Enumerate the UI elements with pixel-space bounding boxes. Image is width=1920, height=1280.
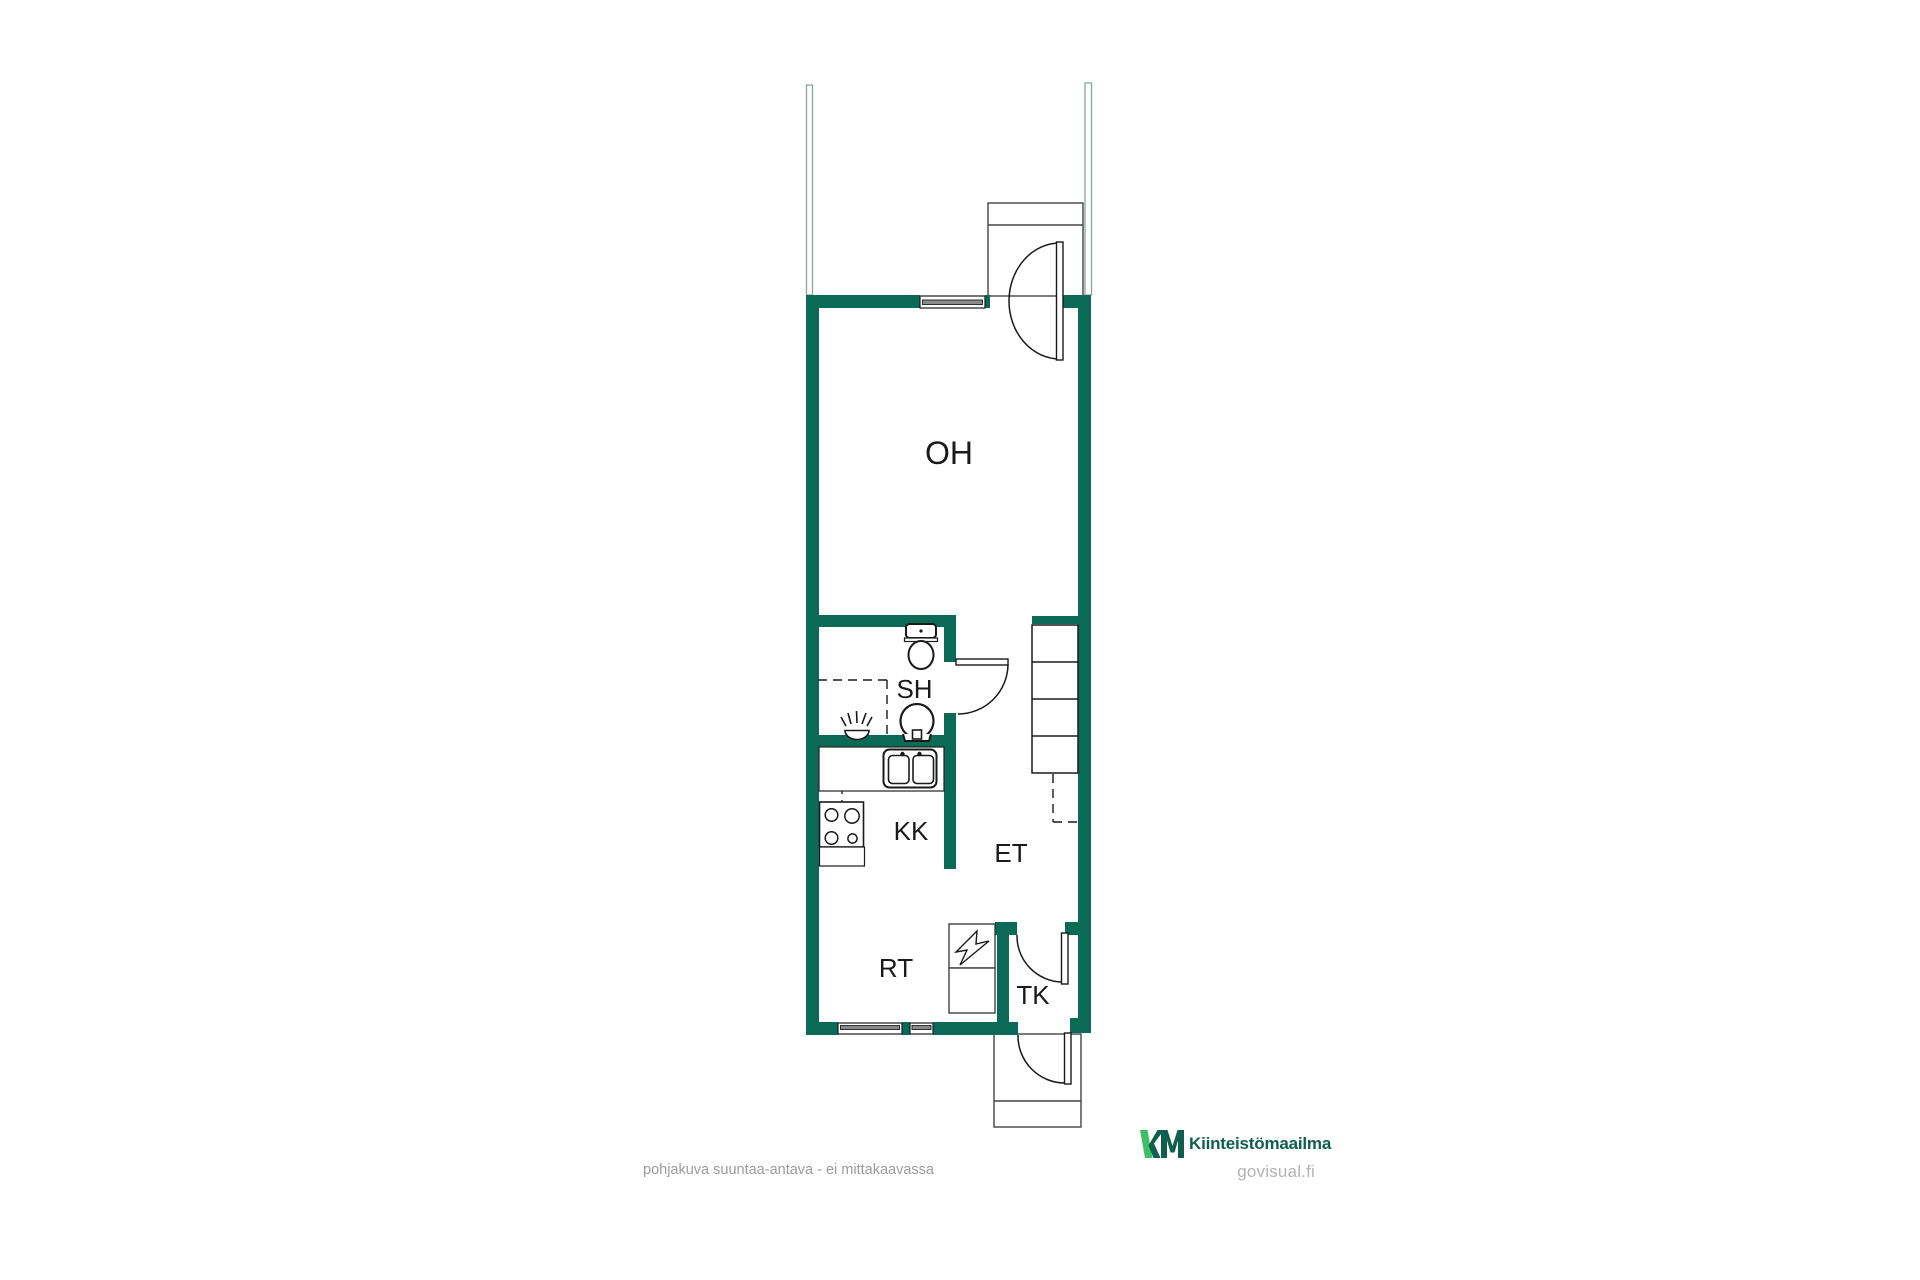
wall-sh-divider-upper (944, 615, 956, 662)
shower-spray-line (857, 711, 858, 723)
kitchen-sink (884, 750, 937, 788)
kiinteistomaailma-logo: Kiinteistömaailma (1137, 1126, 1331, 1162)
room-label-et: ET (994, 838, 1027, 868)
electrical-cabinet (949, 924, 995, 1013)
wall-bottom-right-segment (933, 1022, 1018, 1035)
window-top-glass (923, 300, 983, 305)
wall-closet-stub (1032, 616, 1091, 624)
window-top (920, 296, 985, 308)
sink-basin-left (889, 756, 910, 784)
washbasin (901, 704, 934, 741)
toilet-button (919, 629, 922, 632)
toilet-bowl (909, 641, 934, 669)
wall-bottom-mid-segment (902, 1022, 910, 1035)
shower-spray-line (867, 717, 872, 726)
watermark-text: govisual.fi (1230, 1162, 1315, 1182)
window-bottom-large-glass (841, 1026, 900, 1030)
wall-top-mid-sliver (985, 295, 990, 308)
tk-exterior-door-leaf (1065, 1033, 1072, 1084)
stove-base (820, 847, 865, 866)
electrical-box-lower (949, 968, 995, 1013)
km-monogram-icon (1137, 1127, 1187, 1161)
stove-burner (845, 809, 859, 823)
floorplan-page: OH SH KK ET RT TK pohjakuva suuntaa-anta… (0, 0, 1920, 1280)
sink-tap-dot (900, 752, 904, 756)
wall-sh-bottom (806, 735, 956, 747)
bathroom-door-leaf (956, 659, 1008, 665)
room-label-sh: SH (896, 674, 932, 704)
bathroom-door (956, 659, 1008, 714)
kitchen-fixtures (819, 747, 944, 866)
wall-top-left-segment (806, 295, 920, 308)
shower-spray-line (862, 713, 866, 724)
wall-bottom-left-segment (806, 1022, 838, 1035)
bathroom-door-swing-arc (958, 664, 1008, 714)
shower-spray-line (848, 713, 851, 724)
sink-tap-dot (917, 752, 921, 756)
window-bottom-large (838, 1023, 902, 1034)
yard-line-left (807, 85, 813, 295)
room-label-tk: TK (1016, 980, 1050, 1010)
window-bottom-small (910, 1023, 933, 1034)
stove-burner (848, 834, 857, 843)
wall-tk-stub-left (995, 922, 1017, 935)
hall-closet (1032, 625, 1078, 773)
room-label-rt: RT (879, 953, 913, 983)
sink-basin-right (913, 756, 934, 784)
wall-bottom-corner (1070, 1018, 1091, 1033)
room-label-oh: OH (925, 435, 973, 471)
stove (820, 802, 865, 866)
wall-left (806, 295, 819, 1035)
wall-tk-stub-right (1065, 922, 1091, 935)
entrance-door-leaf (1057, 242, 1064, 360)
toilet (905, 624, 938, 669)
stove-burner (825, 809, 838, 822)
tk-inner-door (1017, 933, 1068, 984)
tk-inner-door-leaf (1062, 933, 1069, 984)
room-label-kk: KK (894, 816, 929, 846)
floorplan-drawing: OH SH KK ET RT TK (0, 0, 1920, 1280)
yard-line-right (1085, 83, 1092, 295)
tk-inner-door-swing-arc (1017, 935, 1062, 982)
window-bottom-small-glass (912, 1026, 931, 1030)
disclaimer-text: pohjakuva suuntaa-antava - ei mittakaava… (643, 1163, 934, 1179)
stove-burner (825, 832, 838, 845)
washbasin-tap (913, 730, 922, 739)
km-m-letter (1161, 1130, 1184, 1158)
wall-rt-tk-divider (997, 935, 1009, 1022)
company-name: Kiinteistömaailma (1189, 1134, 1331, 1154)
shower-spray-line (841, 717, 846, 726)
